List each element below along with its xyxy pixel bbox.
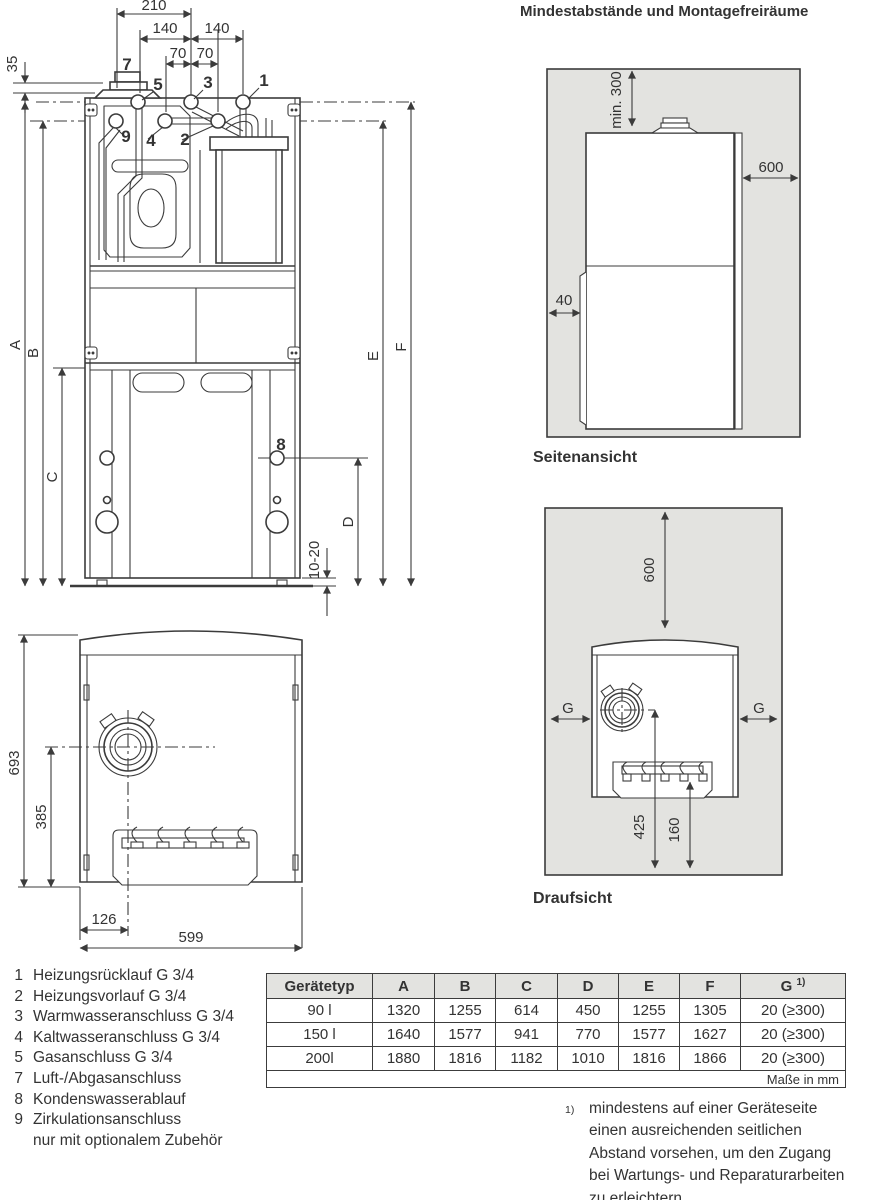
- dim-126: 126: [91, 911, 116, 928]
- legend-num: 5: [8, 1048, 23, 1069]
- legend-item-4: 4 Kaltwasseranschluss G 3/4: [8, 1028, 263, 1049]
- legend-text: Kondenswasserablauf: [33, 1090, 186, 1111]
- callout-2: 2: [180, 130, 189, 149]
- dim-210: 210: [141, 0, 166, 14]
- callout-4: 4: [146, 131, 156, 150]
- dim-425: 425: [631, 814, 648, 839]
- dim-599: 599: [178, 929, 203, 946]
- legend-item-2: 2 Heizungsvorlauf G 3/4: [8, 987, 263, 1008]
- dim-70-left: 70: [170, 45, 187, 62]
- table-note-row: Maße in mm: [267, 1071, 846, 1088]
- dim-E: E: [365, 351, 382, 361]
- dim-D: D: [340, 516, 357, 527]
- col-G: G 1): [741, 974, 846, 999]
- legend-item-5: 5 Gasanschluss G 3/4: [8, 1048, 263, 1069]
- dim-G-right: G: [753, 700, 765, 717]
- col-B: B: [435, 974, 496, 999]
- legend-num: 7: [8, 1069, 23, 1090]
- col-G-footnote-ref: 1): [796, 977, 805, 988]
- col-F: F: [680, 974, 741, 999]
- dim-600-side: 600: [758, 159, 783, 176]
- legend-text: Luft-/Abgasanschluss: [33, 1069, 181, 1090]
- legend-num: 9: [8, 1110, 23, 1131]
- legend-text: Zirkulationsanschluss: [33, 1110, 181, 1131]
- side-view-drawing: min. 300 600 40: [530, 55, 874, 447]
- dim-40: 40: [556, 292, 573, 309]
- legend-num: 8: [8, 1090, 23, 1111]
- table-row-150l: 150 l 1640 1577 941 770 1577 1627 20 (≥3…: [267, 1023, 846, 1047]
- legend-item-8: 8 Kondenswasserablauf: [8, 1090, 263, 1111]
- legend-item-1: 1 Heizungsrücklauf G 3/4: [8, 966, 263, 987]
- dim-F: F: [393, 342, 410, 351]
- table-units-note: Maße in mm: [267, 1071, 846, 1088]
- dim-140-right: 140: [204, 20, 229, 37]
- device-spec-table: Gerätetyp A B C D E F G 1) 90 l 1320 125…: [266, 973, 846, 1088]
- legend-num: 1: [8, 966, 23, 987]
- dim-70-right: 70: [197, 45, 214, 62]
- page-title: Mindestabstände und Montagefreiräume: [520, 3, 808, 20]
- legend-item-9: 9 Zirkulationsanschluss: [8, 1110, 263, 1131]
- cell-type: 150 l: [267, 1023, 373, 1047]
- dim-160: 160: [666, 817, 683, 842]
- dim-600-top: 600: [641, 557, 658, 582]
- legend-text: nur mit optionalem Zubehör: [33, 1131, 223, 1152]
- col-C: C: [496, 974, 558, 999]
- dim-B: B: [25, 348, 42, 358]
- top-view-drawing: 600 G G 425 160: [530, 495, 874, 880]
- dim-A: A: [7, 340, 24, 350]
- col-D: D: [558, 974, 619, 999]
- legend-item-3: 3 Warmwasseranschluss G 3/4: [8, 1007, 263, 1028]
- dim-min300: min. 300: [608, 71, 625, 129]
- callout-5: 5: [153, 75, 162, 94]
- callout-1: 1: [259, 71, 268, 90]
- dim-140-left: 140: [152, 20, 177, 37]
- legend-text: Kaltwasseranschluss G 3/4: [33, 1028, 220, 1049]
- legend-text: Warmwasseranschluss G 3/4: [33, 1007, 234, 1028]
- table-row-200l: 200l 1880 1816 1182 1010 1816 1866 20 (≥…: [267, 1047, 846, 1071]
- legend-num: 4: [8, 1028, 23, 1049]
- footnote-ref: 1): [565, 1098, 589, 1200]
- top-view-caption: Draufsicht: [533, 890, 612, 908]
- col-geraetetyp: Gerätetyp: [267, 974, 373, 999]
- dim-10-20: 10-20: [306, 541, 323, 579]
- col-A: A: [373, 974, 435, 999]
- legend-text: Heizungsvorlauf G 3/4: [33, 987, 186, 1008]
- front-view-drawing: 210 140 140 70 70 35 A B C D E F 10-20 7…: [0, 0, 440, 620]
- legend-text: Gasanschluss G 3/4: [33, 1048, 173, 1069]
- legend-item-7: 7 Luft-/Abgasanschluss: [8, 1069, 263, 1090]
- callout-7: 7: [122, 55, 131, 74]
- dim-C: C: [44, 471, 61, 482]
- cell-type: 200l: [267, 1047, 373, 1071]
- legend-item-9-continuation: nur mit optionalem Zubehör: [8, 1131, 263, 1152]
- dim-35: 35: [4, 56, 21, 73]
- dim-385: 385: [33, 804, 50, 829]
- legend: 1 Heizungsrücklauf G 3/4 2 Heizungsvorla…: [8, 966, 263, 1151]
- callout-3: 3: [203, 73, 212, 92]
- page: 210 140 140 70 70 35 A B C D E F 10-20 7…: [0, 0, 874, 1200]
- table-header-row: Gerätetyp A B C D E F G 1): [267, 974, 846, 999]
- side-view-caption: Seitenansicht: [533, 449, 637, 467]
- footnote: 1) mindestens auf einer Geräteseite eine…: [565, 1098, 871, 1200]
- legend-num: 2: [8, 987, 23, 1008]
- callout-9: 9: [121, 127, 130, 146]
- dim-693: 693: [6, 750, 23, 775]
- dim-G-left: G: [562, 700, 574, 717]
- col-E: E: [619, 974, 680, 999]
- table-row-90l: 90 l 1320 1255 614 450 1255 1305 20 (≥30…: [267, 999, 846, 1023]
- legend-num: 3: [8, 1007, 23, 1028]
- side-view-boiler: [580, 118, 742, 429]
- legend-text: Heizungsrücklauf G 3/4: [33, 966, 194, 987]
- callout-8: 8: [276, 435, 285, 454]
- cell-type: 90 l: [267, 999, 373, 1023]
- footnote-text: mindestens auf einer Geräteseite einen a…: [589, 1098, 844, 1200]
- bottom-view-drawing: 693 385 126 599: [0, 600, 340, 960]
